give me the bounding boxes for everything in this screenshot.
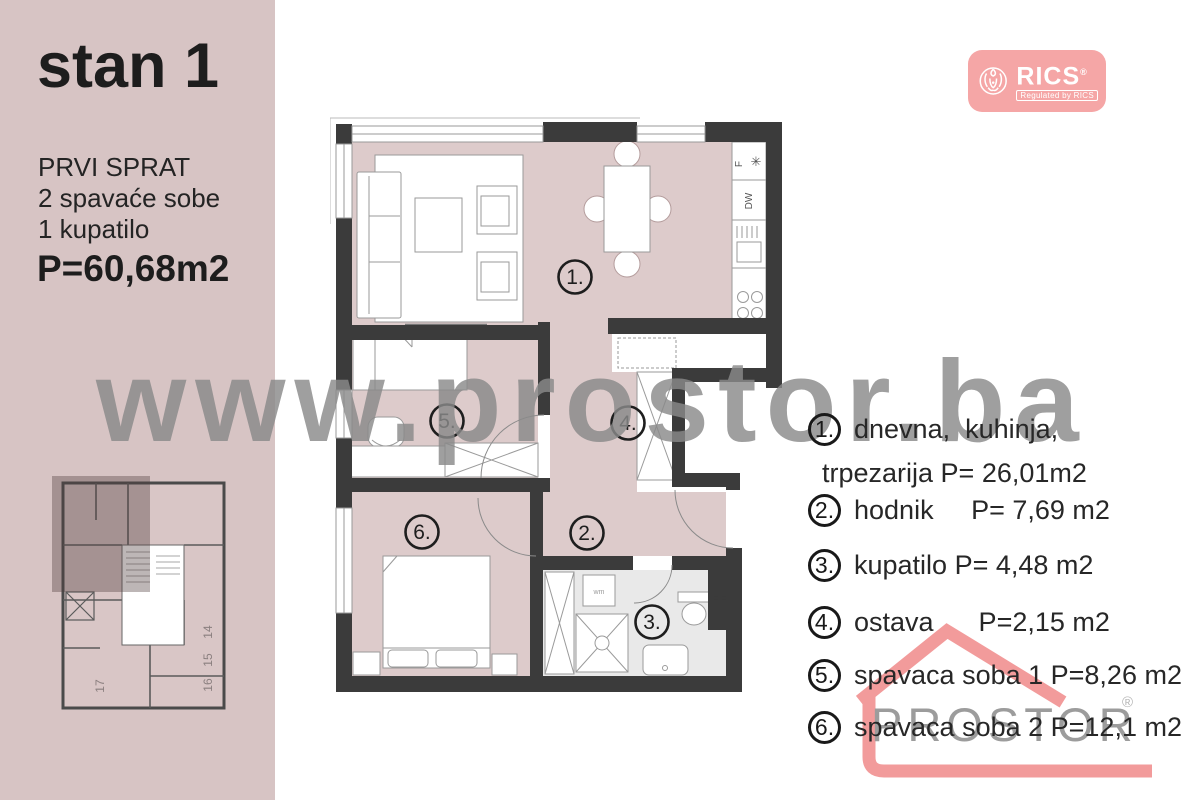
unit-15-label: 15 — [201, 653, 215, 667]
rics-badge: RICS® Regulated by RICS — [968, 50, 1106, 112]
keyplan-highlight-overlay — [52, 476, 150, 592]
legend-item-5: 5. spavaca soba 1 P=8,26 m2 — [808, 659, 1182, 692]
watermark: www.prostor.ba — [96, 334, 1088, 468]
apartment-title: stan 1 — [37, 30, 219, 102]
svg-text:1.: 1. — [566, 266, 584, 289]
legend-num-1: 1. — [808, 413, 841, 446]
rics-lion-icon — [974, 58, 1012, 104]
bath-cabinet — [708, 570, 726, 630]
legend-text-1: dnevna, kuhinja, — [854, 414, 1058, 445]
fridge-label: F — [734, 161, 745, 167]
legend-num-5: 5. — [808, 659, 841, 692]
legend-item-3: 3. kupatilo P= 4,48 m2 — [808, 549, 1093, 582]
legend-num-6: 6. — [808, 711, 841, 744]
legend-item-4: 4. ostava P=2,15 m2 — [808, 606, 1110, 639]
bedrooms-label: 2 spavaće sobe — [38, 183, 220, 214]
nightstand-right — [492, 654, 517, 675]
sofa — [357, 172, 401, 318]
legend-item-1: 1. dnevna, kuhinja, — [808, 413, 1058, 446]
bath-sink — [643, 645, 688, 675]
legend-item-6: 6. spavaca soba 2 P=12,1 m2 — [808, 711, 1182, 744]
key-plan: 14 15 16 17 — [48, 468, 238, 723]
unit-14-label: 14 — [201, 625, 215, 639]
dishwasher-label: DW — [744, 192, 755, 209]
legend-num-2: 2. — [808, 494, 841, 527]
washer-label: wm — [593, 589, 605, 596]
coffee-table — [415, 198, 462, 252]
legend-text-4: ostava P=2,15 m2 — [854, 607, 1110, 638]
legend-item-2: 2. hodnik P= 7,69 m2 — [808, 494, 1110, 527]
rics-tagline: Regulated by RICS — [1016, 90, 1098, 101]
hall-wardrobe — [545, 572, 574, 674]
bathroom-label: 1 kupatilo — [38, 214, 220, 245]
unit-16-label: 16 — [201, 678, 215, 692]
apartment-subtitle: PRVI SPRAT 2 spavaće sobe 1 kupatilo — [38, 152, 220, 245]
rics-registered-mark: ® — [1080, 67, 1088, 77]
total-area-label: P=60,68m2 — [37, 248, 229, 290]
floor-label: PRVI SPRAT — [38, 152, 220, 183]
shower — [576, 614, 628, 672]
svg-text:2.: 2. — [578, 522, 596, 545]
legend-text-2: hodnik P= 7,69 m2 — [854, 495, 1110, 526]
legend-text-1-line2: trpezarija P= 26,01m2 — [822, 458, 1087, 489]
nightstand-left — [353, 652, 380, 675]
legend-num-3: 3. — [808, 549, 841, 582]
legend-text-6: spavaca soba 2 P=12,1 m2 — [854, 712, 1182, 743]
svg-text:6.: 6. — [413, 521, 431, 544]
legend-text-3: kupatilo P= 4,48 m2 — [854, 550, 1093, 581]
fridge-snowflake-icon: ✳ — [751, 154, 762, 169]
hallway-lower-floor — [543, 492, 726, 556]
rics-wordmark: RICS® — [1016, 61, 1087, 88]
legend-text-5: spavaca soba 1 P=8,26 m2 — [854, 660, 1182, 691]
dining-table — [604, 166, 650, 252]
prostor-registered-mark: ® — [1122, 694, 1133, 711]
svg-text:3.: 3. — [643, 611, 661, 634]
unit-17-label: 17 — [93, 679, 107, 693]
legend-num-4: 4. — [808, 606, 841, 639]
